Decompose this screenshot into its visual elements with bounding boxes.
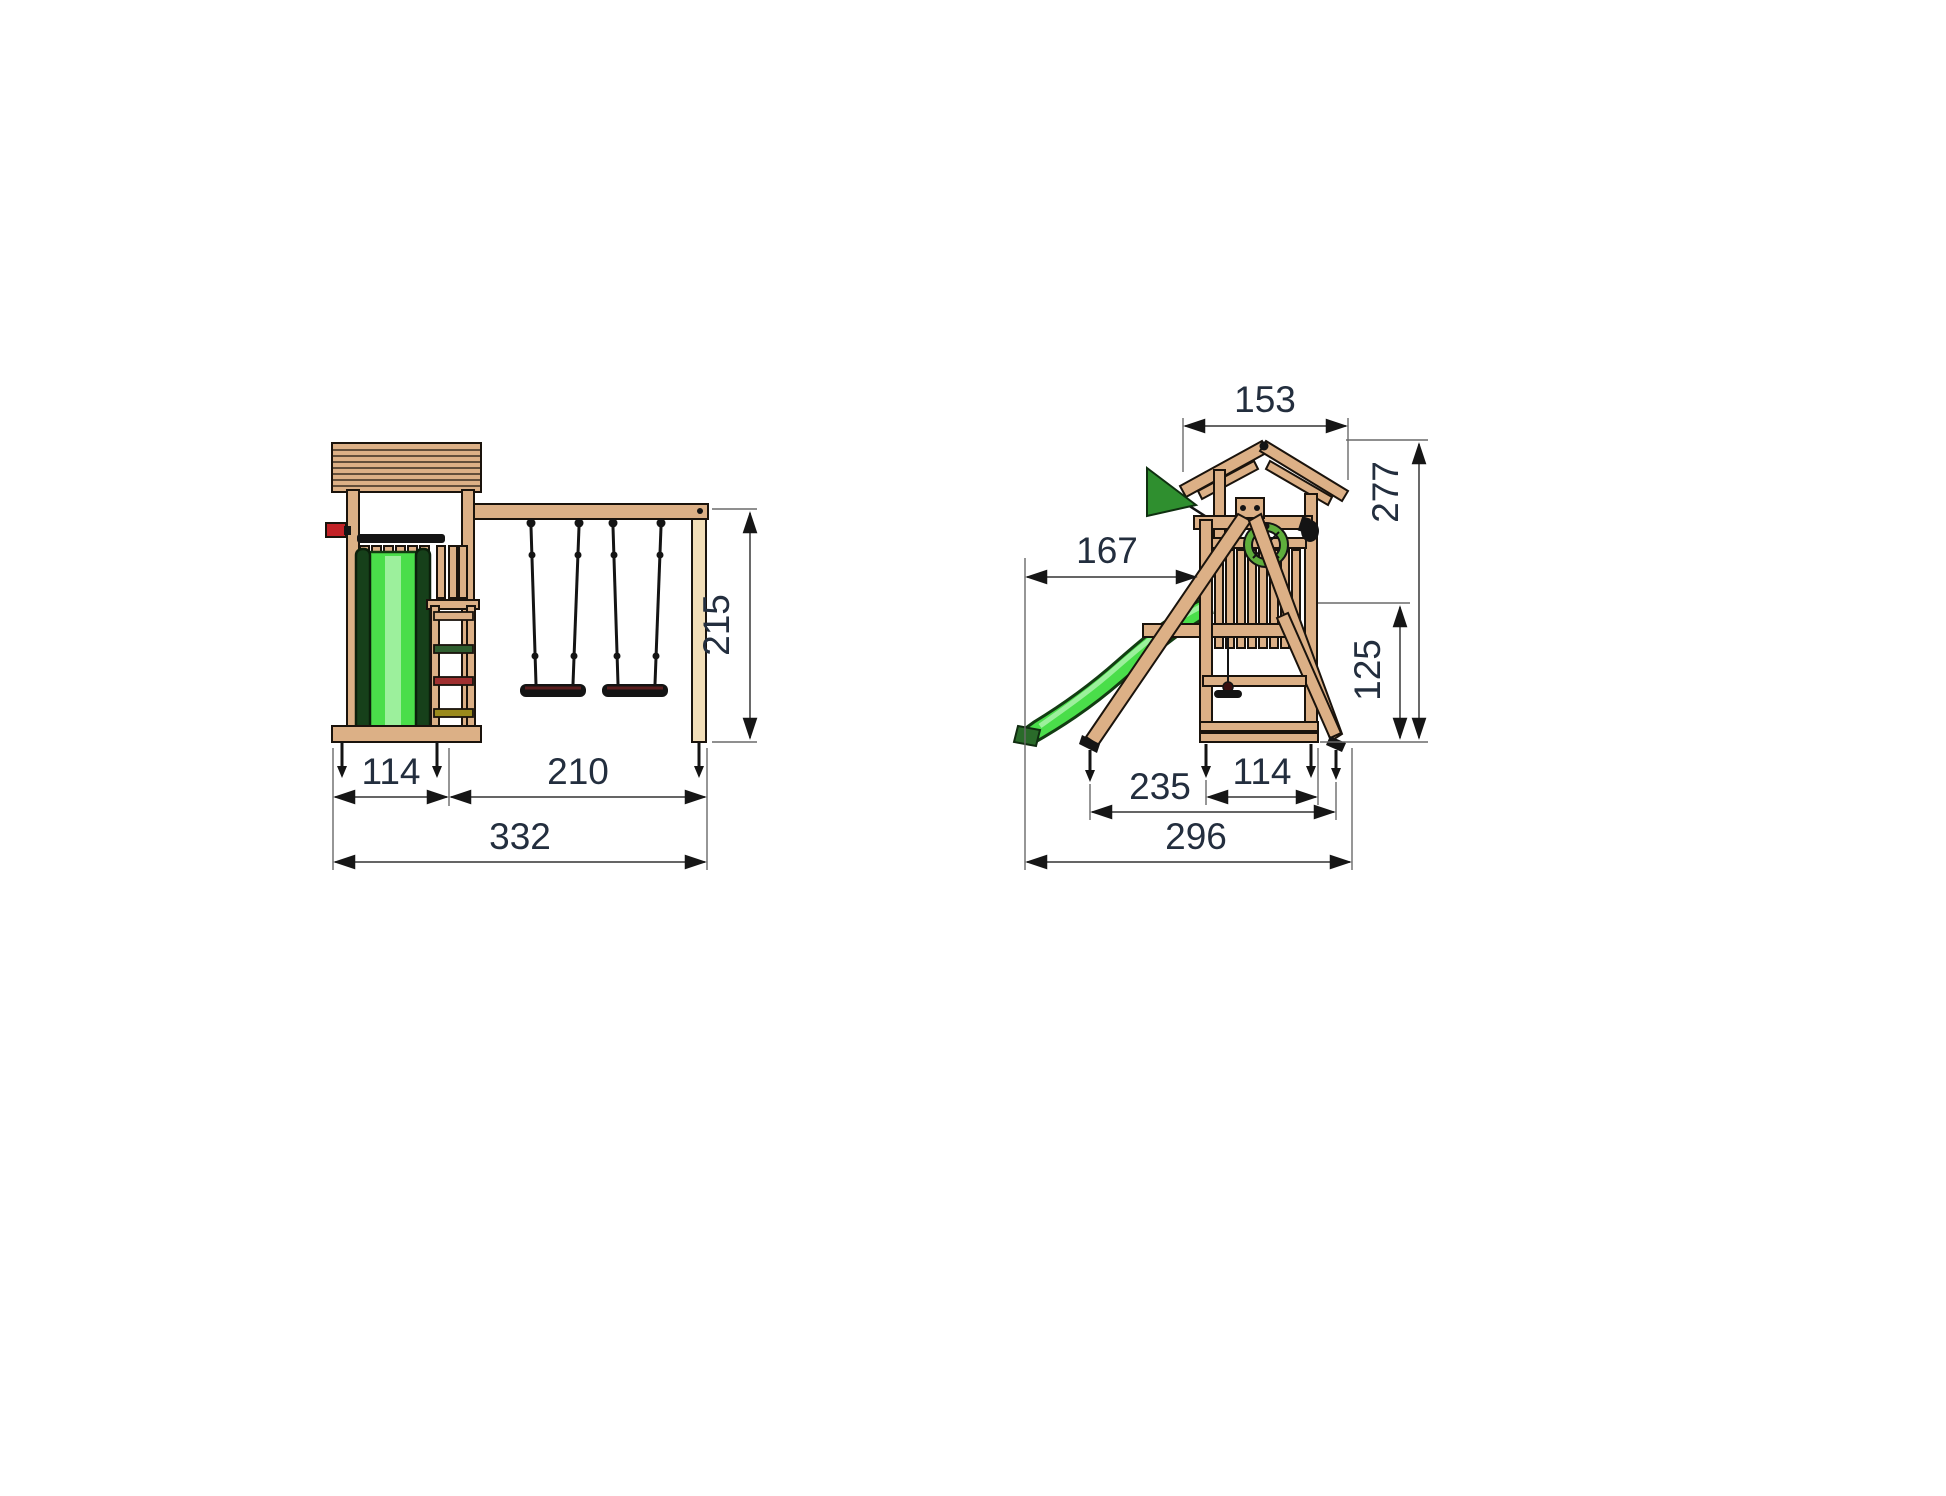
dim-label-slide-reach: 167 — [1076, 530, 1138, 571]
dim-label-total-height: 277 — [1365, 461, 1406, 523]
slide-rail-left — [356, 549, 370, 735]
side-anchors — [1085, 744, 1341, 782]
ladder-rung — [434, 612, 473, 620]
dim-label-platform-height: 125 — [1347, 639, 1388, 701]
swing-1 — [520, 519, 586, 698]
swing-rope — [573, 527, 579, 684]
slide-bed-highlight — [385, 556, 401, 734]
slide-rail-right — [416, 549, 430, 735]
swing-rope — [613, 527, 618, 684]
swing-seat — [520, 684, 586, 697]
dim-label-tower-depth: 114 — [1233, 751, 1292, 792]
dim-label-total-depth: 296 — [1165, 816, 1227, 857]
ladder-rung-green — [434, 645, 473, 653]
side-roof — [1180, 441, 1348, 505]
red-accessory — [326, 523, 346, 537]
swing-hanger — [657, 519, 666, 528]
side-mid-rail — [1203, 676, 1306, 686]
swing-seat — [602, 684, 668, 697]
front-roof — [332, 443, 481, 492]
side-base-bar — [1200, 722, 1318, 731]
swing-hanger — [527, 519, 536, 528]
front-base-plinth — [332, 726, 481, 742]
ladder-rail-right — [467, 606, 475, 742]
railing-slat — [459, 546, 467, 598]
swing-hanger — [609, 519, 618, 528]
playground-diagram: 215 114 210 332 — [0, 0, 1946, 1496]
ladder-rail-left — [431, 606, 439, 742]
swing-hanger — [575, 519, 584, 528]
trapeze-bar — [1214, 690, 1242, 698]
dim-label-tower-width: 114 — [362, 751, 421, 792]
dim-label-total-width: 332 — [489, 816, 551, 857]
railing-slat — [449, 546, 457, 598]
dim-label-swing-width: 210 — [547, 751, 609, 792]
dim-label-height: 215 — [696, 594, 737, 656]
drawing-canvas: 215 114 210 332 — [0, 0, 1946, 1496]
ladder-rung-red — [434, 677, 473, 685]
swing-rope — [531, 527, 536, 684]
front-view: 215 114 210 332 — [326, 443, 757, 870]
roof-peak-ornament — [1260, 442, 1269, 451]
dim-label-frame-depth: 235 — [1129, 766, 1191, 807]
red-accessory-mount — [344, 526, 351, 535]
beam-bolt — [697, 508, 703, 514]
swing-rope — [655, 527, 661, 684]
front-slide — [356, 549, 430, 740]
side-base-bar — [1200, 733, 1318, 742]
front-ladder — [427, 600, 479, 742]
front-grab-bar — [357, 534, 445, 543]
side-view: 153 277 125 167 114 235 296 — [1014, 379, 1428, 870]
swing-2 — [602, 519, 668, 698]
railing-slat — [437, 546, 445, 598]
dim-label-roof-width: 153 — [1234, 379, 1296, 420]
swing-beam — [474, 504, 708, 519]
front-swing-frame — [474, 504, 708, 742]
ladder-rung-olive — [434, 709, 473, 717]
slide-end-cap — [1014, 726, 1040, 746]
